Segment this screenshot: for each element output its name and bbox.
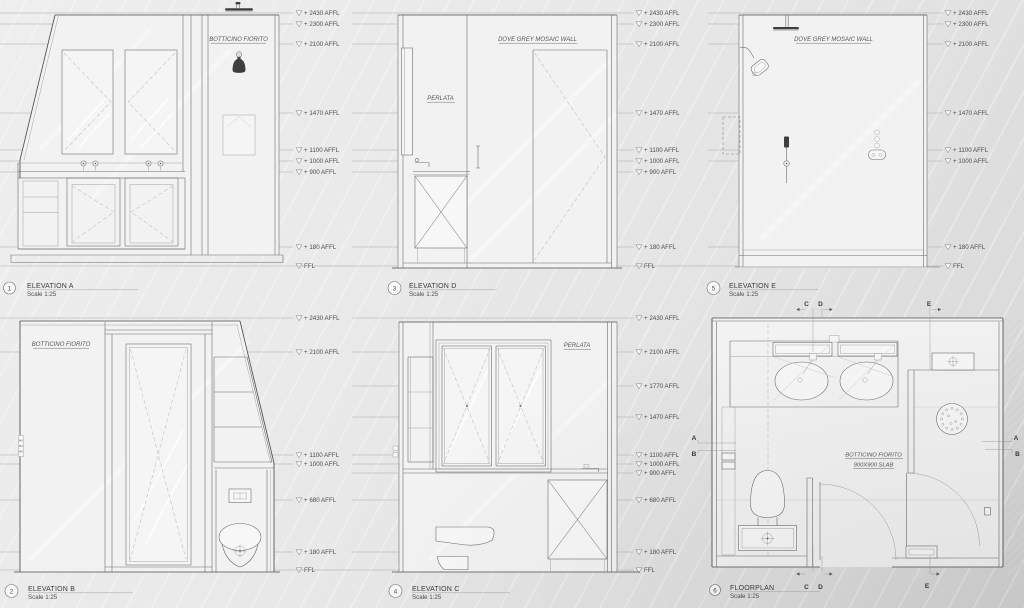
dim-label: + 2430 AFFL (953, 10, 989, 17)
panel-title: ELEVATION A (27, 283, 74, 290)
dim-triangle-icon (636, 111, 642, 116)
section-marker-e-bottom: E (925, 583, 930, 590)
dim-label: + 900 AFFL (304, 169, 337, 176)
panel-number: 4 (394, 588, 398, 595)
section-marker-d-top: D (818, 301, 823, 308)
material-label: BOTTICINO FIORITO (209, 37, 268, 43)
dim-triangle-icon (296, 111, 302, 116)
dim-triangle-icon (296, 316, 302, 321)
dim-label: + 2100 AFFL (644, 41, 680, 48)
dim-label: + 1470 AFFL (644, 110, 680, 117)
dim-triangle-icon (945, 22, 951, 27)
dim-label: + 900 AFFL (644, 169, 677, 176)
panel-title: ELEVATION E (729, 283, 776, 290)
dim-triangle-icon (636, 453, 642, 458)
section-marker-d-bottom: D (818, 584, 823, 591)
dim-label: + 2430 AFFL (644, 10, 680, 17)
panel-number: 5 (712, 285, 716, 292)
dim-triangle-icon (945, 11, 951, 16)
dim-triangle-icon (636, 42, 642, 47)
dim-label: + 1770 AFFL (644, 383, 680, 390)
dim-triangle-icon (636, 415, 642, 420)
dim-label: + 1000 AFFL (644, 158, 680, 165)
dim-triangle-icon (636, 170, 642, 175)
panel-scale: Scale 1:25 (730, 593, 760, 600)
dim-triangle-icon (296, 498, 302, 503)
dim-label: + 180 AFFL (304, 549, 337, 556)
panel-number: 1 (8, 285, 12, 292)
panel-number: 6 (713, 587, 717, 594)
roll-holder-icons-c (393, 446, 398, 457)
dim-label: + 1100 AFFL (644, 452, 680, 459)
dim-label: + 2100 AFFL (953, 41, 989, 48)
dim-label: FFL (644, 263, 656, 270)
dim-triangle-icon (296, 148, 302, 153)
dim-triangle-icon (296, 170, 302, 175)
panel-scale: Scale 1:25 (409, 291, 439, 298)
dim-triangle-icon (636, 245, 642, 250)
dim-label: + 1000 AFFL (644, 461, 680, 468)
dim-triangle-icon (296, 11, 302, 16)
dim-triangle-icon (636, 384, 642, 389)
dim-triangle-icon (636, 550, 642, 555)
title-elevation-d: 3 ELEVATION D Scale 1:25 (388, 282, 497, 299)
panel-scale: Scale 1:25 (27, 291, 57, 298)
wall-finish-label: DOVE GREY MOSAIC WALL (498, 37, 577, 43)
panel-elevation-d: DOVE GREY MOSAIC WALL PERLATA 3 ELEVATIO… (388, 15, 622, 298)
panel-scale: Scale 1:25 (729, 291, 759, 298)
dim-label: + 1470 AFFL (304, 110, 340, 117)
dim-label: + 2100 AFFL (304, 41, 340, 48)
panel-title: ELEVATION C (412, 586, 459, 593)
dim-label: + 2300 AFFL (644, 21, 680, 28)
dim-triangle-icon (945, 264, 951, 269)
section-marker-a-right: A (1014, 435, 1019, 442)
dim-label: + 1470 AFFL (644, 414, 680, 421)
dim-label: + 2430 AFFL (304, 10, 340, 17)
dim-triangle-icon (636, 148, 642, 153)
section-marker-a-left: A (692, 435, 697, 442)
panel-elevation-a: BOTTICINO FIORITO 1 ELEVATION A Scale 1:… (4, 2, 284, 298)
material-label: BOTTICINO FIORITO (32, 342, 91, 348)
dim-label: + 1470 AFFL (953, 110, 989, 117)
dim-triangle-icon (636, 471, 642, 476)
dim-label: + 900 AFFL (644, 470, 677, 477)
dim-triangle-icon (296, 350, 302, 355)
dim-label: + 680 AFFL (304, 497, 337, 504)
dim-label: + 1100 AFFL (953, 147, 989, 154)
dim-triangle-icon (636, 498, 642, 503)
panel-elevation-e: DOVE GREY MOSAIC WALL 5 ELEVATION E Scal… (707, 15, 940, 298)
panel-number: 3 (393, 285, 397, 292)
dim-label: + 180 AFFL (304, 244, 337, 251)
dim-label: + 2100 AFFL (644, 349, 680, 356)
dim-label: + 2300 AFFL (304, 21, 340, 28)
section-marker-b-left: B (692, 451, 697, 458)
dim-label: + 180 AFFL (953, 244, 986, 251)
wall-finish-label: DOVE GREY MOSAIC WALL (794, 37, 873, 43)
dim-triangle-icon (296, 453, 302, 458)
dim-triangle-icon (636, 22, 642, 27)
dim-triangle-icon (636, 350, 642, 355)
dim-label: FFL (304, 263, 316, 270)
dim-triangle-icon (296, 22, 302, 27)
panel-number: 2 (10, 588, 14, 595)
panel-elevation-c: PERLATA 4 ELEVATION C Scale 1:25 (389, 322, 640, 601)
section-marker-c-bottom: C (804, 584, 809, 591)
dim-label: + 2300 AFFL (953, 21, 989, 28)
panel-elevation-b: BOTTICINO FIORITO 2 ELEVATION B Scale 1:… (5, 321, 280, 601)
mirror-cabinet-c (436, 340, 551, 472)
section-marker-b-right: B (1015, 451, 1020, 458)
panel-title: ELEVATION B (28, 586, 75, 593)
dim-triangle-icon (296, 245, 302, 250)
dim-label: + 180 AFFL (644, 244, 677, 251)
dim-triangle-icon (636, 11, 642, 16)
dim-label: FFL (644, 567, 656, 574)
dim-triangle-icon (296, 462, 302, 467)
dim-label: + 180 AFFL (644, 549, 677, 556)
dim-triangle-icon (945, 159, 951, 164)
dim-triangle-icon (296, 159, 302, 164)
dim-label: + 2100 AFFL (304, 349, 340, 356)
panel-scale: Scale 1:25 (412, 594, 442, 601)
dim-triangle-icon (636, 159, 642, 164)
dim-label: FFL (953, 263, 965, 270)
dim-triangle-icon (296, 42, 302, 47)
panel-title: ELEVATION D (409, 283, 456, 290)
dim-triangle-icon (945, 245, 951, 250)
dim-triangle-icon (636, 462, 642, 467)
wall-niche-a (223, 115, 255, 155)
panel-scale: Scale 1:25 (28, 594, 58, 601)
rain-head-plan-icon (937, 404, 968, 435)
panel-title: FLOORPLAN (730, 585, 774, 592)
dashed-niche (723, 117, 740, 154)
panel-floorplan: BOTTICINO FIORITO 900X900 SLAB C D E C D… (692, 301, 1021, 600)
dim-triangle-icon (945, 111, 951, 116)
dim-label: + 1000 AFFL (304, 158, 340, 165)
dim-label: + 1000 AFFL (304, 461, 340, 468)
door-handle-plan (985, 508, 991, 516)
floor-material-line1: BOTTICINO FIORITO (845, 453, 902, 459)
mirror-side-panel (402, 48, 413, 155)
dim-label: + 1100 AFFL (644, 147, 680, 154)
ceiling-shower-icon (225, 2, 253, 11)
dim-label: FFL (304, 567, 316, 574)
dim-label: + 1000 AFFL (953, 158, 989, 165)
dim-triangle-icon (945, 42, 951, 47)
material-label: PERLATA (564, 343, 590, 349)
dim-triangle-icon (296, 550, 302, 555)
dim-label: + 2430 AFFL (644, 315, 680, 322)
material-label: PERLATA (427, 96, 453, 102)
x-cabinet-c (548, 480, 607, 571)
title-elevation-b: 2 ELEVATION B Scale 1:25 (5, 585, 133, 602)
dim-label: + 2430 AFFL (304, 315, 340, 322)
drawing-sheet: + 2430 AFFL+ 2300 AFFL+ 2100 AFFL+ 1470 … (0, 0, 1024, 608)
dim-label: + 1100 AFFL (304, 147, 340, 154)
dim-label: + 1100 AFFL (304, 452, 340, 459)
hatch-region-right (1006, 320, 1024, 568)
title-elevation-e: 5 ELEVATION E Scale 1:25 (707, 282, 818, 299)
drawing-canvas: + 2430 AFFL+ 2300 AFFL+ 2100 AFFL+ 1470 … (0, 0, 1024, 608)
floor-material-line2: 900X900 SLAB (854, 463, 894, 469)
title-elevation-c: 4 ELEVATION C Scale 1:25 (389, 585, 510, 602)
dim-triangle-icon (636, 316, 642, 321)
title-elevation-a: 1 ELEVATION A Scale 1:25 (4, 282, 139, 298)
dim-label: + 680 AFFL (644, 497, 677, 504)
section-marker-e-top: E (927, 301, 932, 308)
dim-triangle-icon (945, 148, 951, 153)
section-marker-c-top: C (804, 301, 809, 308)
